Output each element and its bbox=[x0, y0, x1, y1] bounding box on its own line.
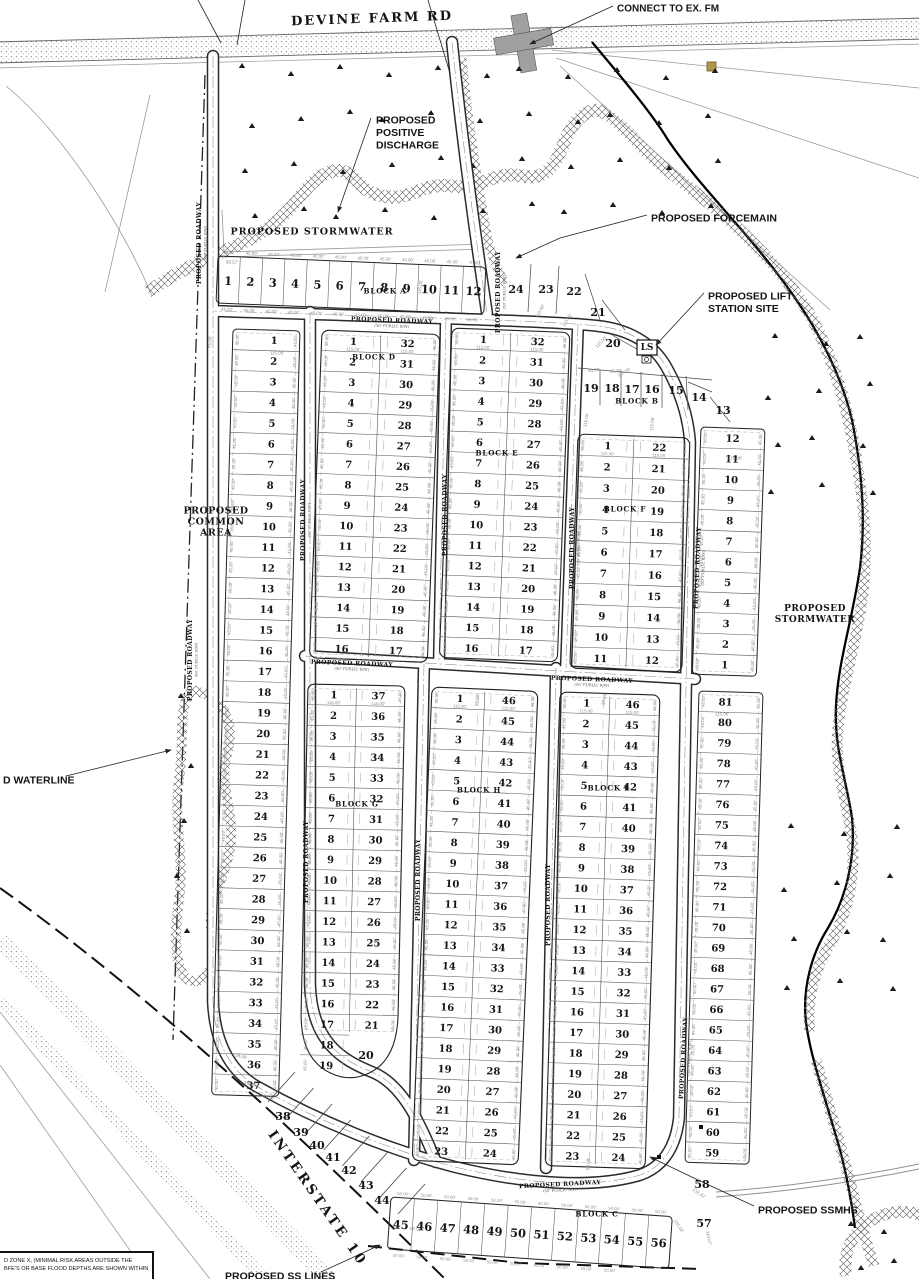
lot-dimension: 45.00' bbox=[423, 959, 428, 971]
lot-number: 8 bbox=[578, 843, 585, 854]
lot-dimension: 45.00' bbox=[425, 523, 430, 535]
lot-dimension: 45.00' bbox=[288, 480, 293, 492]
lot-number: 10 bbox=[594, 633, 608, 644]
lot-number: 11 bbox=[468, 541, 482, 553]
lot-dimension: 45.00' bbox=[518, 984, 523, 996]
lot-line bbox=[694, 633, 758, 635]
marsh-triangle bbox=[663, 75, 669, 80]
lot-dimension: 50.00' bbox=[491, 1197, 503, 1203]
lot-dimension: 45.00' bbox=[223, 747, 228, 759]
proposed-lift-station-site: STATION SITE bbox=[708, 303, 779, 315]
lot-number: 35 bbox=[618, 926, 632, 937]
lot-number: 3 bbox=[722, 619, 729, 630]
marsh-triangle bbox=[765, 395, 771, 400]
lot-dimension: 50.00' bbox=[533, 1263, 545, 1269]
lot-number: 10 bbox=[323, 876, 337, 887]
lot-dimension: 45.00' bbox=[310, 688, 315, 700]
road-label-text: PROPOSED ROADWAY bbox=[545, 864, 552, 946]
lot-line bbox=[226, 577, 293, 579]
lot-number: 18 bbox=[389, 626, 403, 638]
lot-number: 14 bbox=[646, 613, 660, 624]
lot-number: 6 bbox=[600, 548, 607, 559]
lot-dimension: 45.00' bbox=[648, 823, 653, 835]
lot-number: 16 bbox=[440, 1002, 454, 1014]
lot-dimension: 45.00' bbox=[675, 634, 680, 646]
lot-dimension: 45.00' bbox=[304, 997, 309, 1009]
lot-number: 43 bbox=[499, 757, 513, 769]
marsh-triangle bbox=[389, 162, 395, 167]
lot-number: 2 bbox=[456, 714, 463, 725]
lot-number: 17 bbox=[569, 1028, 583, 1039]
lot-dimension: 45.00' bbox=[580, 439, 585, 451]
lot-number: 17 bbox=[519, 646, 533, 658]
road-label-sub: (50' PUBLIC R/W) bbox=[543, 1186, 578, 1193]
lot-line bbox=[695, 834, 759, 836]
lot-line bbox=[698, 509, 762, 511]
lot-dimension: 45.00' bbox=[680, 485, 685, 497]
lot-number: 23 bbox=[254, 791, 268, 802]
road-label-text: PROPOSED ROADWAY bbox=[442, 474, 449, 556]
lot-rear-line bbox=[626, 439, 634, 667]
lot-dimension: 45.00' bbox=[305, 956, 310, 968]
lot-number: 14 bbox=[571, 966, 585, 977]
lot-dimension: 45.00' bbox=[588, 367, 601, 374]
lot-dimension: 50.00' bbox=[444, 1194, 456, 1200]
lot-dimension: 45.00' bbox=[286, 563, 291, 575]
block-label: BLOCK E bbox=[476, 449, 519, 458]
lot-dimension: 45.00' bbox=[224, 706, 229, 718]
lot-dimension: 45.00' bbox=[273, 1018, 278, 1030]
lot-number: 23 bbox=[393, 523, 407, 535]
road-label: PROPOSED ROADWAY(50' PUBLIC R/W) bbox=[351, 316, 434, 330]
block-label: BLOCK H bbox=[457, 786, 501, 795]
lot-number: 10 bbox=[421, 282, 438, 297]
lot-number: 30 bbox=[399, 380, 413, 392]
lot-number: 20 bbox=[651, 485, 665, 496]
lot-dimension: 115.00' bbox=[270, 351, 284, 356]
lot-number: 16 bbox=[644, 383, 660, 396]
lot-number: 17 bbox=[624, 383, 639, 396]
lot-line bbox=[225, 598, 292, 600]
lot-number: 15 bbox=[465, 623, 479, 635]
lot-strip-east-lower: 8145.00'45.00'8045.00'45.00'7945.00'45.0… bbox=[685, 691, 763, 1164]
lot-number: 4 bbox=[347, 398, 354, 409]
lot-dimension: 45.00' bbox=[646, 885, 651, 897]
floodplain-note-box: D ZONE X, (MINIMAL RISK AREAS OUTSIDE TH… bbox=[0, 1251, 154, 1279]
lot-number: 30 bbox=[368, 835, 382, 846]
marsh-triangle bbox=[880, 937, 886, 942]
lot-number: 4 bbox=[291, 277, 300, 291]
lot-line bbox=[528, 264, 531, 312]
terrain-line bbox=[0, 1065, 150, 1279]
lot-dimension: 45.00' bbox=[550, 1088, 555, 1100]
lot-number: 4 bbox=[269, 398, 276, 409]
lot-number: 14 bbox=[321, 958, 335, 969]
lot-dimension: 45.00' bbox=[272, 1080, 277, 1092]
lot-number: 12 bbox=[725, 434, 739, 445]
lot-dimension: 45.00' bbox=[417, 1082, 422, 1094]
lot-dimension: 45.00' bbox=[221, 830, 226, 842]
lot-dimension: 45.00' bbox=[293, 335, 298, 347]
lot-number: 35 bbox=[492, 922, 506, 934]
lot-line bbox=[217, 888, 284, 890]
marsh-triangle bbox=[867, 381, 873, 386]
marsh-triangle bbox=[431, 215, 437, 220]
lot-dimension: 50.00' bbox=[510, 1261, 522, 1267]
lot-line bbox=[232, 350, 299, 352]
lot-number: 35 bbox=[371, 732, 385, 743]
lot-number: 12 bbox=[443, 920, 457, 932]
lot-number: 11 bbox=[573, 904, 587, 915]
lot-dimension: 45.00' bbox=[442, 641, 447, 653]
lot-line bbox=[223, 701, 290, 703]
marsh-triangle bbox=[781, 887, 787, 892]
lot-dimension: 45.00' bbox=[314, 580, 319, 592]
lot-line bbox=[692, 937, 756, 939]
lot-number: 39 bbox=[293, 1126, 308, 1139]
lot-number: 2 bbox=[582, 719, 589, 730]
lot-number: 31 bbox=[250, 957, 264, 968]
lot-number: 61 bbox=[706, 1107, 720, 1118]
lot-number: 10 bbox=[574, 884, 588, 895]
lot-number: 40 bbox=[496, 819, 510, 831]
marsh-triangle bbox=[477, 118, 483, 123]
lot-dimension: 45.00' bbox=[430, 379, 435, 391]
lot-number: 5 bbox=[724, 578, 731, 589]
lot-dimension: 45.00' bbox=[275, 977, 280, 989]
lot-number: 13 bbox=[337, 583, 351, 595]
lot-number: 36 bbox=[371, 712, 385, 723]
lot-line bbox=[700, 448, 764, 450]
lot-dimension: 45.00' bbox=[425, 897, 430, 909]
block-D: 145.00'245.00'345.00'445.00'545.00'645.0… bbox=[309, 330, 440, 662]
lot-number: 20 bbox=[256, 729, 270, 740]
lot-number: 4 bbox=[723, 598, 730, 609]
lot-dimension: 45.00' bbox=[641, 1049, 646, 1061]
lot-dimension: 45.00' bbox=[415, 1144, 420, 1156]
lot-dimension: 45.00' bbox=[277, 894, 282, 906]
lot-dimension: 45.00' bbox=[688, 1105, 693, 1117]
lot-dimension: 45.00' bbox=[220, 851, 225, 863]
lot-number: 7 bbox=[451, 817, 458, 828]
lot-number: 22 bbox=[523, 543, 537, 555]
lot-number: 37 bbox=[620, 885, 634, 896]
lot-dimension: 45.00' bbox=[302, 1059, 307, 1071]
lot-line bbox=[411, 1199, 415, 1251]
lot-dimension: 68.57' bbox=[223, 250, 235, 255]
lot-number: 15 bbox=[647, 592, 661, 603]
marsh-triangle bbox=[291, 161, 297, 166]
lot-number: 2 bbox=[246, 275, 255, 289]
lot-dimension: 45.00' bbox=[452, 374, 457, 386]
lot-number: 67 bbox=[710, 984, 724, 995]
lot-dimension: 45.00' bbox=[233, 396, 238, 408]
lot-dimension: 45.00' bbox=[287, 542, 292, 554]
lot-dimension: 45.00' bbox=[520, 922, 525, 934]
lot-number: 26 bbox=[526, 460, 540, 472]
lot-dimension: 45.00' bbox=[555, 923, 560, 935]
lot-line bbox=[223, 681, 290, 683]
lot-number: 13 bbox=[715, 404, 730, 417]
lot-number: 28 bbox=[486, 1066, 500, 1078]
lot-number: 9 bbox=[266, 501, 273, 512]
stormwater-channel bbox=[816, 1060, 874, 1266]
lot-dimension: 45.00' bbox=[429, 420, 434, 432]
lot-dimension: 45.00' bbox=[396, 731, 401, 743]
lot-dimension: 45.00' bbox=[559, 779, 564, 791]
marsh-triangle bbox=[484, 73, 490, 78]
lot-dimension: 45.00' bbox=[559, 799, 564, 811]
lot-line bbox=[695, 592, 759, 594]
lot-number: 9 bbox=[473, 500, 480, 511]
lot-line bbox=[434, 1200, 438, 1252]
marsh-triangle bbox=[249, 123, 255, 128]
lot-dimension: 45.00' bbox=[557, 841, 562, 853]
lot-dimension: 45.00' bbox=[749, 922, 754, 934]
lot-dimension: 45.00' bbox=[231, 458, 236, 470]
lot-dimension: 45.00' bbox=[573, 630, 578, 642]
lot-dimension: 45.00' bbox=[678, 549, 683, 561]
lot-dimension: 45.00' bbox=[321, 416, 326, 428]
lot-number: 28 bbox=[397, 421, 411, 433]
lot-dimension: 45.00' bbox=[276, 935, 281, 947]
lot-number: 27 bbox=[527, 440, 541, 452]
lot-dimension: 45.00' bbox=[693, 962, 698, 974]
lot-number: 43 bbox=[358, 1179, 373, 1192]
lot-dimension: 45.00' bbox=[289, 459, 294, 471]
lot-dimension: 45.00' bbox=[231, 478, 236, 490]
lot-number: 19 bbox=[520, 604, 534, 616]
lot-dimension: 115.00' bbox=[530, 347, 544, 353]
lot-dimension: 45.00' bbox=[560, 378, 565, 390]
lot-dimension: 45.00' bbox=[517, 1004, 522, 1016]
lot-line bbox=[556, 266, 559, 314]
lot-number: 19 bbox=[437, 1064, 451, 1076]
lot-number: 6 bbox=[452, 797, 459, 808]
marsh-triangle bbox=[561, 209, 567, 214]
lot-dimension: 45.00' bbox=[552, 1026, 557, 1038]
lot-number: 7 bbox=[345, 460, 352, 471]
lot-dimension: 50.00' bbox=[393, 1253, 405, 1259]
lot-dimension: 45.00' bbox=[282, 728, 287, 740]
lot-number: 3 bbox=[478, 376, 485, 387]
lot-dimension: 45.00' bbox=[444, 579, 449, 591]
lot-number: 2 bbox=[330, 711, 337, 722]
lot-rear-line bbox=[349, 688, 356, 1032]
lot-dimension: 45.00' bbox=[549, 1108, 554, 1120]
lot-number: 6 bbox=[335, 278, 344, 292]
lot-number: 32 bbox=[616, 988, 630, 999]
lot-number: 20 bbox=[567, 1090, 581, 1101]
lot-number: 16 bbox=[648, 570, 662, 581]
lot-dimension: 45.00' bbox=[638, 1152, 643, 1164]
lot-dimension: 45.00' bbox=[743, 1127, 748, 1139]
lot-number: 14 bbox=[442, 961, 456, 973]
lot-number: 39 bbox=[621, 844, 635, 855]
lot-line bbox=[692, 916, 756, 918]
lot-dimension: 45.00' bbox=[324, 334, 329, 346]
lot-dimension: 45.00' bbox=[752, 577, 757, 589]
lot-dimension: 110.07' bbox=[705, 1231, 712, 1246]
marsh-triangle bbox=[382, 207, 388, 212]
lot-dimension: 45.00' bbox=[285, 604, 290, 616]
lot-number: 19 bbox=[390, 605, 404, 617]
lift-station-vault bbox=[642, 356, 651, 363]
lot-dimension: 45.00' bbox=[395, 773, 400, 785]
proposed-common-area: AREA bbox=[199, 528, 232, 539]
lot-dimension: 45.00' bbox=[276, 914, 281, 926]
lot-dimension: 45.00' bbox=[393, 896, 398, 908]
lot-dimension: 45.00' bbox=[290, 439, 295, 451]
marsh-triangle bbox=[242, 168, 248, 173]
lot-dimension: 45.00' bbox=[552, 1005, 557, 1017]
lot-dimension: 45.00' bbox=[522, 881, 527, 893]
lot-number: 22 bbox=[566, 1131, 580, 1142]
lot-number: 8 bbox=[344, 480, 351, 491]
lot-dimension: 45.00' bbox=[561, 717, 566, 729]
lot-number: 24 bbox=[483, 1149, 497, 1161]
lot-number: 21 bbox=[436, 1105, 450, 1117]
lot-dimension: 45.00' bbox=[308, 791, 313, 803]
lot-dimension: 45.00' bbox=[303, 1018, 308, 1030]
lot-number: 44 bbox=[374, 1194, 390, 1207]
lot-dimension: 45.00' bbox=[427, 461, 432, 473]
lot-dimension: 45.00' bbox=[305, 915, 310, 927]
lot-line bbox=[697, 773, 761, 775]
lot-dimension: 50.00' bbox=[514, 1199, 526, 1205]
marsh-triangle bbox=[887, 873, 893, 878]
lot-line bbox=[551, 1208, 555, 1260]
marsh-triangle bbox=[857, 334, 863, 339]
lot-number: 4 bbox=[477, 397, 484, 408]
lot-line bbox=[216, 929, 283, 931]
lot-dimension: 45.00' bbox=[681, 464, 686, 476]
lot-dimension: 45.00' bbox=[428, 836, 433, 848]
lot-number: 5 bbox=[268, 419, 275, 430]
lot-dimension: 45.00' bbox=[274, 997, 279, 1009]
lot-dimension: 45.00' bbox=[695, 637, 700, 649]
lot-line bbox=[693, 896, 757, 898]
lot-number: 29 bbox=[398, 400, 412, 412]
lot-number: 5 bbox=[477, 417, 484, 428]
lot-number: 14 bbox=[466, 602, 480, 614]
marsh-triangle bbox=[768, 489, 774, 494]
block-label: BLOCK C bbox=[575, 1210, 618, 1219]
lot-number: 15 bbox=[668, 384, 683, 397]
lot-dimension: 45.00' bbox=[642, 1008, 647, 1020]
marsh-triangle bbox=[784, 985, 790, 990]
marsh-triangle bbox=[519, 156, 525, 161]
lot-dimension: 45.00' bbox=[432, 339, 437, 351]
lot-number: 9 bbox=[727, 496, 734, 507]
lot-number: 25 bbox=[484, 1128, 498, 1140]
lot-number: 81 bbox=[718, 697, 732, 708]
road-label-sub: (50' PUBLIC R/W) bbox=[574, 682, 609, 688]
lot-number: 18 bbox=[438, 1044, 452, 1056]
lot-dimension: 45.00' bbox=[552, 604, 557, 616]
lot-rear-line bbox=[465, 692, 485, 1159]
lot-line bbox=[225, 619, 292, 621]
lot-dimension: 45.00' bbox=[558, 439, 563, 451]
basin-edge bbox=[224, 249, 486, 257]
lot-number: 23 bbox=[434, 1147, 448, 1159]
lot-dimension: 45.00' bbox=[745, 1066, 750, 1078]
lot-dimension: 45.00' bbox=[562, 337, 567, 349]
proposed-positive-discharge: POSITIVE bbox=[376, 127, 424, 139]
lot-number: 57 bbox=[696, 1217, 711, 1230]
lot-number: 60 bbox=[706, 1128, 720, 1139]
lot-dimension: 45.00' bbox=[696, 839, 701, 851]
lot-number: 73 bbox=[714, 861, 728, 872]
floodplain-note-line2: BFE'S OR BASE FLOOD DEPTHS ARE SHOWN WIT… bbox=[4, 1265, 149, 1273]
lot-number: 74 bbox=[714, 841, 728, 852]
marsh-triangle bbox=[881, 1229, 887, 1234]
lot-number: 8 bbox=[474, 479, 481, 490]
proposed-common-area: COMMON bbox=[188, 517, 245, 528]
lot-line bbox=[686, 1121, 750, 1123]
lot-dimension: 45.00' bbox=[574, 609, 579, 621]
lot-dimension: 45.00' bbox=[752, 598, 757, 610]
road-label: PROPOSED ROADWAY bbox=[303, 821, 310, 903]
lot-line bbox=[232, 370, 299, 372]
lot-dimension: 115.00' bbox=[502, 706, 516, 712]
lot-number: 10 bbox=[262, 522, 276, 533]
lot-dimension: 115.00' bbox=[652, 453, 666, 458]
lot-dimension: 115.00' bbox=[601, 451, 615, 456]
lot-dimension: 45.00' bbox=[696, 617, 701, 629]
lot-number: 13 bbox=[443, 941, 457, 953]
connect-to-ex-fm: CONNECT TO EX. FM bbox=[617, 4, 719, 15]
lot-number: 13 bbox=[645, 634, 659, 645]
lot-number: 14 bbox=[260, 605, 274, 616]
road-label-sub: (60' PUBLIC R/W) bbox=[193, 642, 198, 677]
lot-number: 65 bbox=[709, 1025, 723, 1036]
lot-number: 6 bbox=[725, 557, 732, 568]
fm-crossing bbox=[490, 9, 557, 76]
lot-number: 5 bbox=[601, 526, 608, 537]
lot-dimension: 45.00' bbox=[693, 941, 698, 953]
lot-dimension: 45.00' bbox=[427, 856, 432, 868]
lot-dimension: 45.00' bbox=[392, 917, 397, 929]
lot-number: 80 bbox=[718, 718, 732, 729]
lot-dimension: 161.02' bbox=[673, 1219, 686, 1234]
lot-dimension: 45.00' bbox=[421, 1000, 426, 1012]
lot-dimension: 45.00' bbox=[417, 1103, 422, 1115]
lot-dimension: 33.06' bbox=[601, 692, 608, 705]
lot-dimension: 115.00' bbox=[649, 417, 655, 432]
marsh-triangle bbox=[715, 158, 721, 163]
lot-line bbox=[689, 1019, 753, 1021]
lot-number: 2 bbox=[479, 355, 486, 366]
marsh-triangle bbox=[809, 435, 815, 440]
road-label: PROPOSED ROADWAY bbox=[415, 839, 422, 921]
lot-number: 27 bbox=[367, 897, 381, 908]
terrain-line bbox=[105, 95, 150, 292]
road-label-text: PROPOSED ROADWAY bbox=[303, 821, 310, 903]
lot-line bbox=[361, 1152, 388, 1182]
lot-dimension: 45.00' bbox=[688, 1126, 693, 1138]
lot-number: 3 bbox=[348, 378, 355, 389]
lot-dimension: 45.00' bbox=[751, 861, 756, 873]
lot-line bbox=[645, 1215, 649, 1267]
block-label: BLOCK I bbox=[588, 784, 629, 793]
lot-dimension: 45.00' bbox=[281, 749, 286, 761]
marsh-triangle bbox=[772, 333, 778, 338]
lot-dimension: 45.00' bbox=[755, 495, 760, 507]
lot-number: 25 bbox=[366, 938, 380, 949]
lot-number: 30 bbox=[250, 936, 264, 947]
block-label: BLOCK B bbox=[615, 397, 659, 406]
